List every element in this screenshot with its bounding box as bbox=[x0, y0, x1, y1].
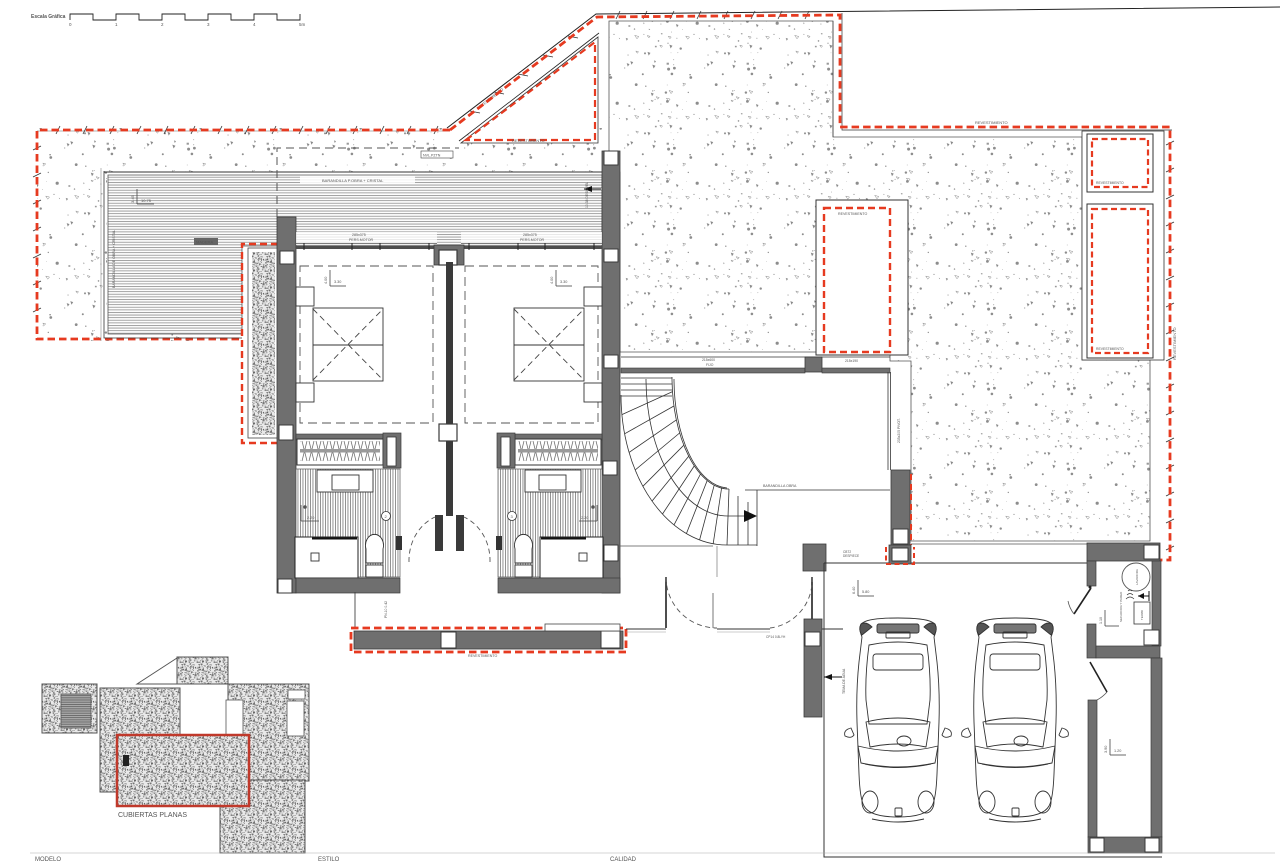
svg-text:REVESTIMIENTO: REVESTIMIENTO bbox=[1096, 347, 1124, 351]
svg-text:DESPIECE: DESPIECE bbox=[843, 554, 859, 558]
svg-text:BARANDILLA P.OBRA + CRISTAL: BARANDILLA P.OBRA + CRISTAL bbox=[322, 178, 384, 183]
svg-text:SECADORA Y PARED: SECADORA Y PARED bbox=[1119, 591, 1123, 622]
svg-text:2.20: 2.20 bbox=[307, 516, 314, 520]
svg-text:5m: 5m bbox=[299, 22, 306, 27]
svg-text:FIJO: FIJO bbox=[706, 363, 714, 367]
svg-text:215x190: 215x190 bbox=[845, 359, 858, 363]
svg-text:10.38 DESNIVEL: 10.38 DESNIVEL bbox=[585, 182, 589, 208]
svg-text:BARANDILLA OBRA: BARANDILLA OBRA bbox=[763, 484, 797, 488]
svg-text:4.00: 4.00 bbox=[324, 277, 328, 284]
svg-text:5.80: 5.80 bbox=[862, 590, 869, 594]
svg-text:MADERA: MADERA bbox=[196, 240, 213, 245]
svg-text:PERS.MOTOR: PERS.MOTOR bbox=[349, 238, 373, 242]
svg-text:3.30: 3.30 bbox=[560, 280, 567, 284]
svg-text:MODELO: MODELO bbox=[35, 857, 61, 863]
svg-text:2.20: 2.20 bbox=[581, 516, 588, 520]
svg-text:1.10: 1.10 bbox=[1099, 617, 1103, 624]
svg-text:LAVADORA: LAVADORA bbox=[1135, 569, 1139, 585]
svg-text:285x375: 285x375 bbox=[352, 233, 366, 237]
svg-text:CUBIERTAS PLANAS: CUBIERTAS PLANAS bbox=[118, 812, 187, 819]
svg-text:1.20: 1.20 bbox=[1114, 749, 1121, 753]
svg-text:235x205 PIVOT.: 235x205 PIVOT. bbox=[897, 418, 901, 443]
svg-text:10.75: 10.75 bbox=[141, 198, 152, 203]
svg-text:REVESTIMIENTO: REVESTIMIENTO bbox=[468, 654, 497, 658]
svg-text:3.45: 3.45 bbox=[130, 194, 135, 203]
svg-text:ESTILO: ESTILO bbox=[318, 857, 340, 863]
svg-text:Escala Gráfica: Escala Gráfica bbox=[31, 14, 66, 20]
svg-text:3.90: 3.90 bbox=[1104, 746, 1108, 753]
svg-text:215x600: 215x600 bbox=[702, 358, 715, 362]
svg-text:REVESTIMIENTO: REVESTIMIENTO bbox=[975, 120, 1008, 125]
svg-text:3.30: 3.30 bbox=[334, 280, 341, 284]
svg-text:PN.10 0.42: PN.10 0.42 bbox=[384, 601, 388, 618]
svg-text:REVESTIMIENTO: REVESTIMIENTO bbox=[1096, 181, 1124, 185]
svg-text:285x375: 285x375 bbox=[523, 233, 537, 237]
svg-text:CP14 0.8LYH: CP14 0.8LYH bbox=[766, 635, 786, 639]
svg-text:TEMA DE AGUA: TEMA DE AGUA bbox=[842, 668, 846, 694]
svg-text:PERS.MOTOR: PERS.MOTOR bbox=[520, 238, 544, 242]
svg-text:BARANDILLA DE OBRA + CRISTAL: BARANDILLA DE OBRA + CRISTAL bbox=[112, 230, 116, 288]
svg-text:REVESTIMIENTO: REVESTIMIENTO bbox=[838, 212, 867, 216]
svg-text:REVESTIMIENTO: REVESTIMIENTO bbox=[512, 138, 545, 143]
svg-text:REVESTIMIENTO: REVESTIMIENTO bbox=[1172, 327, 1177, 360]
svg-text:TERMO: TERMO bbox=[1140, 609, 1144, 620]
svg-text:6.40: 6.40 bbox=[852, 587, 856, 594]
svg-text:NVL.PZTN: NVL.PZTN bbox=[423, 154, 441, 158]
svg-text:CALIDAD: CALIDAD bbox=[610, 857, 637, 863]
svg-text:4.00: 4.00 bbox=[550, 277, 554, 284]
